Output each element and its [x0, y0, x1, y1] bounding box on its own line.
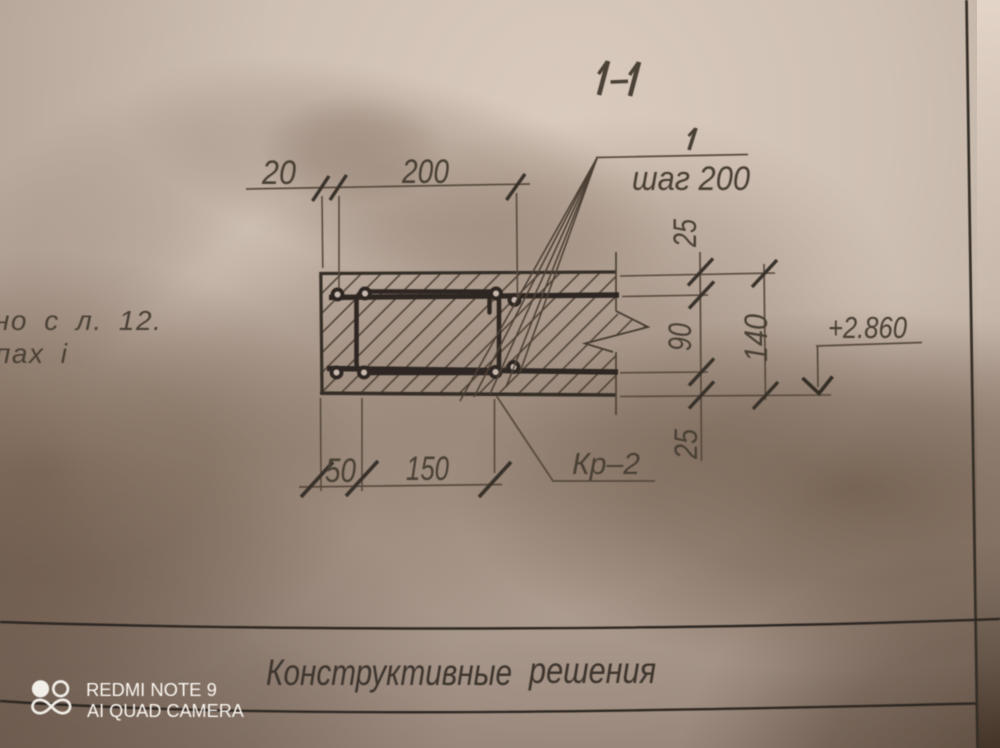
svg-text:200: 200	[401, 153, 449, 191]
svg-text:но с л. 12.: но с л. 12.	[0, 305, 162, 336]
svg-text:25: 25	[668, 429, 704, 460]
svg-text:Кр–2: Кр–2	[572, 446, 640, 481]
svg-text:50: 50	[325, 452, 356, 490]
svg-text:20: 20	[261, 154, 296, 192]
svg-text:пах i: пах i	[0, 338, 68, 369]
svg-text:шаг 200: шаг 200	[632, 160, 750, 198]
svg-text:AI QUAD CAMERA: AI QUAD CAMERA	[87, 701, 245, 721]
svg-text:25: 25	[667, 219, 703, 248]
svg-text:REDMI NOTE 9: REDMI NOTE 9	[86, 679, 217, 700]
svg-text:решения: решения	[528, 650, 656, 691]
svg-text:90: 90	[662, 323, 698, 351]
svg-text:Конструктивные: Конструктивные	[266, 652, 512, 693]
svg-text:150: 150	[406, 450, 449, 488]
svg-text:140: 140	[738, 314, 774, 362]
svg-text:+2.860: +2.860	[828, 310, 907, 345]
